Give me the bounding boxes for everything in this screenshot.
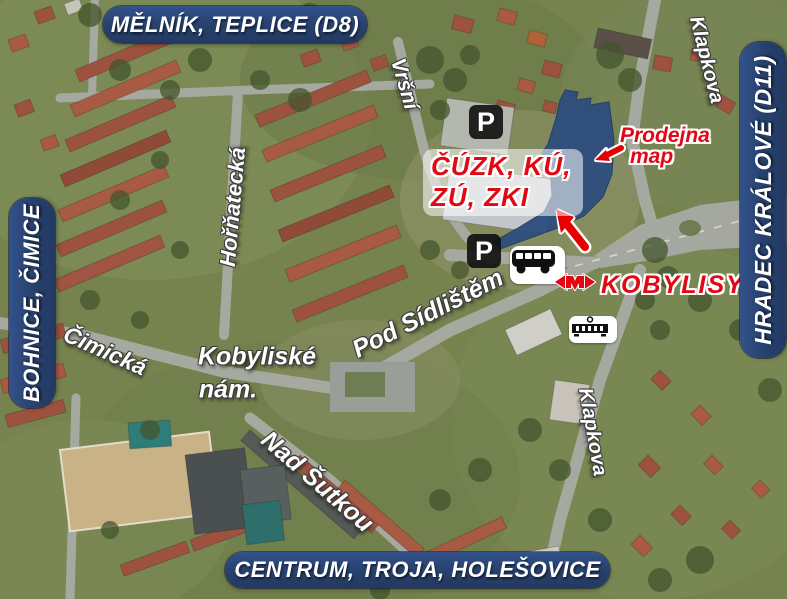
banner-north-melnik-teplice: MĚLNÍK, TEPLICE (D8) [103,6,367,43]
parking-icon-north: P [469,105,503,139]
street-label-kobyliske-nam-line1: Kobyliské [198,343,316,372]
tram-icon [569,316,611,338]
office-label-line1: ČÚZK, KÚ, [431,151,577,182]
map-canvas: MĚLNÍK, TEPLICE (D8) BOHNICE, ČIMICE HRA… [0,0,787,599]
street-label-kobyliske-nam-line2: nám. [199,376,257,405]
metro-station-label: KOBYLISY [601,271,745,300]
tram-stop-icon [569,316,617,343]
map-shop-label-line1: Prodejna [620,125,710,146]
office-label-line2: ZÚ, ZKI [431,182,577,213]
banner-east-hradec-kralove: HRADEC KRÁLOVÉ (D11) [740,42,786,358]
parking-icon-south: P [467,234,501,268]
map-shop-label: Prodejna map [620,125,710,167]
bus-icon [510,246,557,276]
map-shop-label-line2: map [630,146,710,167]
office-label-box: ČÚZK, KÚ, ZÚ, ZKI [423,149,583,216]
banner-west-bohnice-cimice: BOHNICE, ČIMICE [9,198,55,408]
banner-south-centrum-troja-holesovice: CENTRUM, TROJA, HOLEŠOVICE [225,552,610,588]
